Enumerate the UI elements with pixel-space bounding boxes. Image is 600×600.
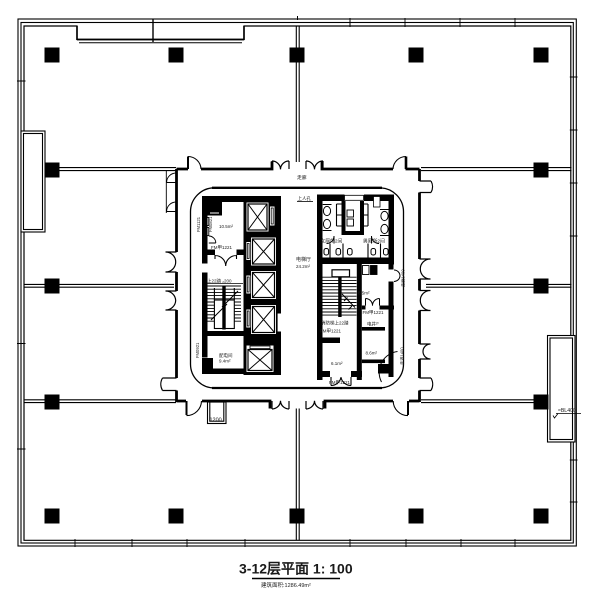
svg-text:男厕所2间: 男厕所2间 bbox=[363, 238, 385, 245]
svg-text:FM0821: FM0821 bbox=[208, 216, 213, 232]
svg-text:走道1400: 走道1400 bbox=[399, 347, 406, 365]
svg-text:1200: 1200 bbox=[210, 418, 222, 424]
svg-text:FM0921: FM0921 bbox=[195, 342, 200, 358]
svg-text:电井²": 电井²" bbox=[367, 321, 379, 328]
svg-text:女厕所2间: 女厕所2间 bbox=[321, 238, 343, 245]
svg-text:走廊: 走廊 bbox=[297, 174, 307, 181]
svg-text:8.6m²: 8.6m² bbox=[366, 351, 378, 356]
svg-text:走廊1400: 走廊1400 bbox=[400, 269, 407, 287]
svg-text:FM1121: FM1121 bbox=[196, 216, 201, 232]
svg-text:上人孔: 上人孔 bbox=[298, 195, 312, 202]
svg-text:10.5m²: 10.5m² bbox=[219, 224, 234, 229]
svg-text:6.1m²: 6.1m² bbox=[331, 361, 343, 366]
svg-text:消防梯上22踏: 消防梯上22踏 bbox=[321, 320, 349, 327]
svg-text:8.5m²: 8.5m² bbox=[358, 291, 370, 296]
svg-text:电梯厅: 电梯厅 bbox=[296, 256, 311, 263]
svg-text:24.2m²: 24.2m² bbox=[296, 264, 311, 269]
svg-text:建筑面积:1286.49m²: 建筑面积:1286.49m² bbox=[261, 581, 311, 589]
svg-text:9.4m²: 9.4m² bbox=[219, 359, 231, 364]
svg-text:3-12层平面 1: 100: 3-12层平面 1: 100 bbox=[239, 561, 353, 577]
